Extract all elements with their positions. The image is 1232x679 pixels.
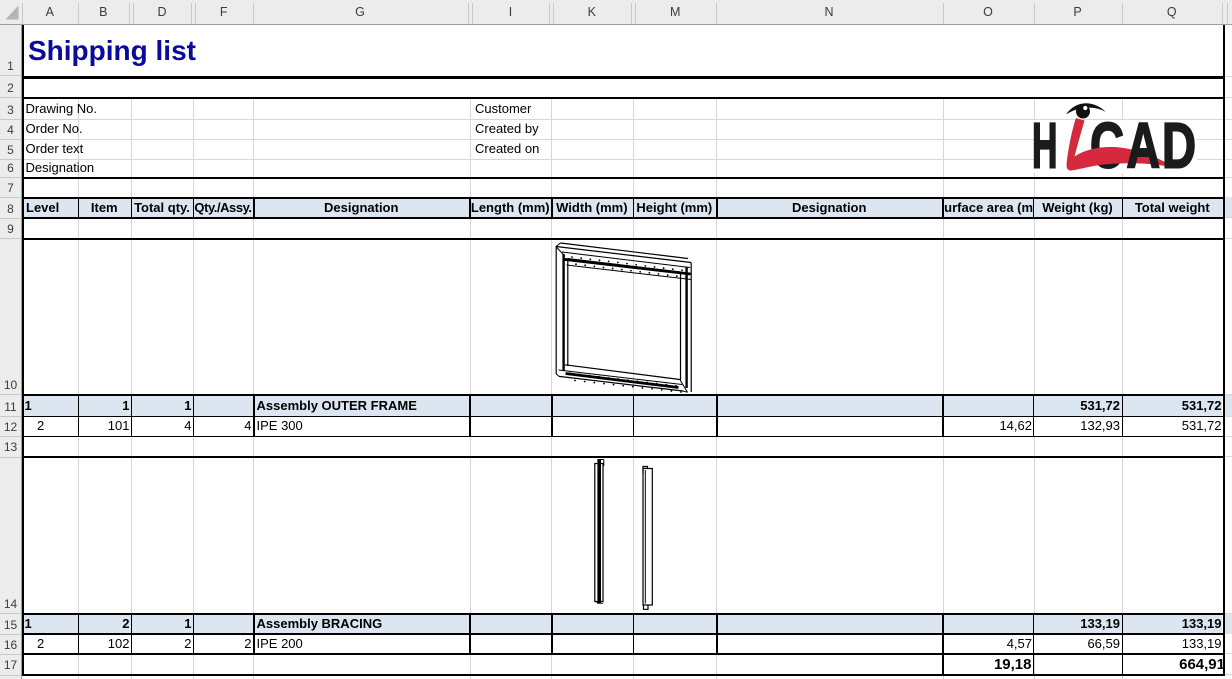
svg-text:A: A [1127,110,1161,182]
svg-text:H: H [1032,110,1058,182]
svg-text:D: D [1162,110,1196,182]
svg-text:C: C [1090,110,1124,182]
